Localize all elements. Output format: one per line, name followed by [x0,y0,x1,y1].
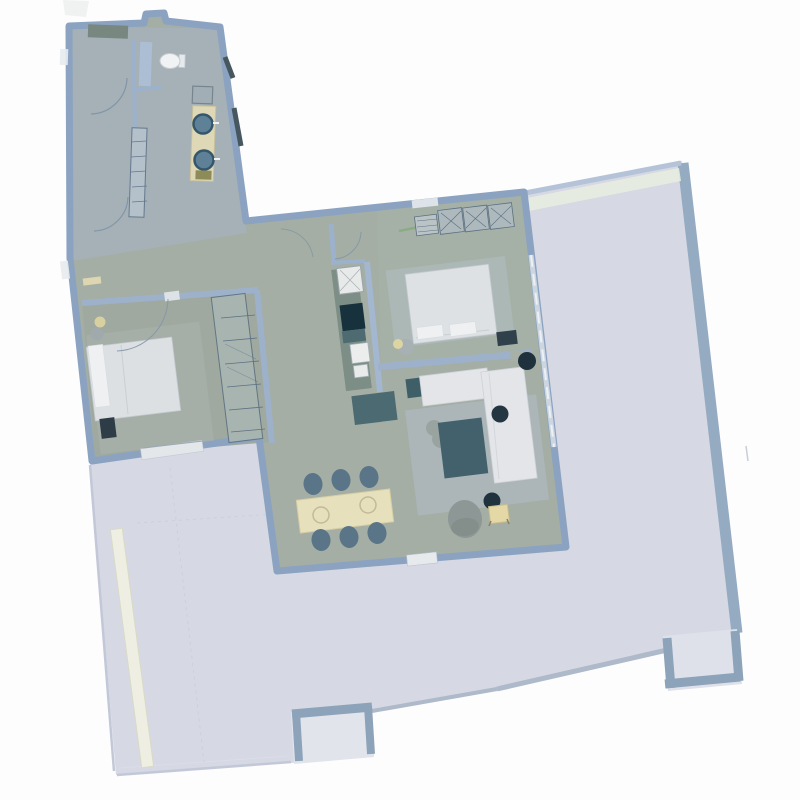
kitchen-stub-wall [331,224,334,262]
scan-mark-right [746,446,748,461]
beige-side-table [489,504,510,523]
kitchen-cooktop [340,303,366,332]
entry-mat [88,24,128,38]
scan-smudge-top-left [63,0,89,17]
bedroom1-door-gap [164,291,180,302]
scanned-floor-plan-page: Scanned apartment floor plan with wrap-a… [0,0,800,800]
utility-sink-1 [194,115,213,134]
kitchen-sink-box-2 [353,364,368,378]
kitchen-island [351,391,397,425]
floor-plan-svg: Scanned apartment floor plan with wrap-a… [0,0,800,800]
wing-floor-tint [70,27,247,261]
kitchen-sink-box-1 [350,342,370,363]
rug-side-table [492,406,509,423]
corner-notch-right-band [735,631,739,681]
closet-x2 [463,205,490,232]
coffee-table [438,418,488,479]
stool-2-yellow [393,339,403,349]
bath-wall-strip [139,42,153,86]
stool-1-yellow [95,317,106,328]
toilet-bowl [160,53,181,69]
washing-machine [192,86,213,104]
stair-notch-left-band [296,712,299,761]
nightstand-1 [99,417,116,439]
utility-olive-box [195,170,211,180]
nightstand-2 [496,330,518,346]
leftwall-window-2 [60,49,69,65]
kitchen-link-wall [331,261,365,263]
utility-sink-2 [195,151,214,170]
stool-1-gray [91,328,104,341]
wall-side-table [518,352,536,370]
stair-notch-right-band [368,706,371,754]
